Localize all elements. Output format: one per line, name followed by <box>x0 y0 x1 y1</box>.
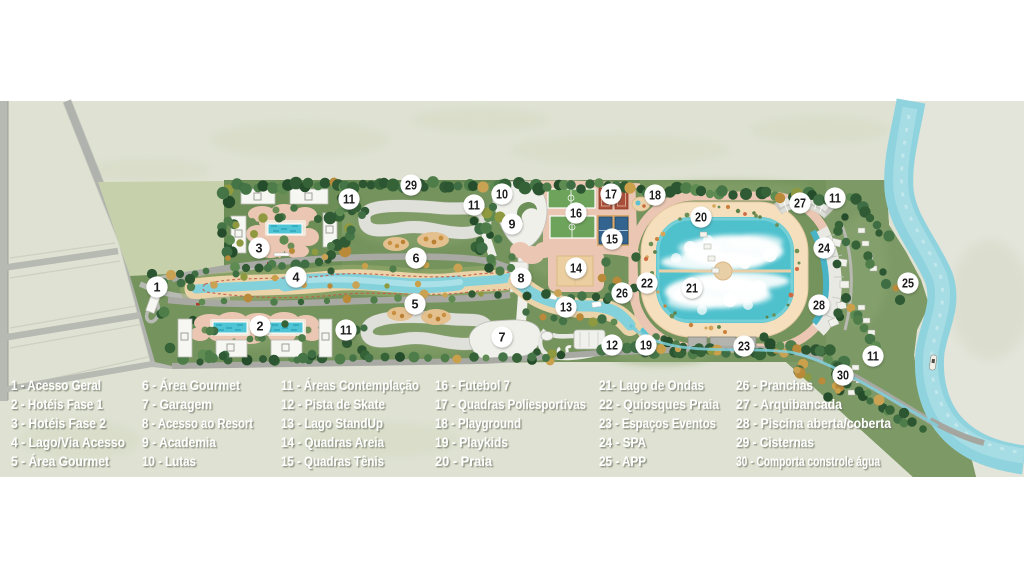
svg-text:10 - Lutas: 10 - Lutas <box>142 453 196 469</box>
svg-text:3 - Hotéis Fase 2: 3 - Hotéis Fase 2 <box>11 415 106 431</box>
svg-text:4: 4 <box>293 270 300 284</box>
svg-text:30: 30 <box>837 368 849 382</box>
svg-text:13 - Lago StandUp: 13 - Lago StandUp <box>281 415 383 431</box>
svg-text:14 - Quadras Areia: 14 - Quadras Areia <box>281 434 384 450</box>
svg-text:1 - Acesso Geral: 1 - Acesso Geral <box>11 377 101 393</box>
svg-text:1: 1 <box>154 280 161 294</box>
svg-text:15 - Quadras Tênis: 15 - Quadras Tênis <box>281 453 384 469</box>
svg-text:26: 26 <box>616 286 628 300</box>
svg-text:12 - Pista de Skate: 12 - Pista de Skate <box>281 396 385 412</box>
svg-text:23: 23 <box>738 339 750 353</box>
svg-text:27: 27 <box>794 196 806 210</box>
svg-text:18: 18 <box>649 188 661 202</box>
svg-text:22: 22 <box>641 276 653 290</box>
svg-text:16 - Futebol 7: 16 - Futebol 7 <box>435 377 510 393</box>
svg-text:3: 3 <box>256 241 263 255</box>
svg-text:19 - Playkids: 19 - Playkids <box>435 434 508 450</box>
svg-text:21: 21 <box>686 281 698 295</box>
svg-text:11: 11 <box>829 191 841 205</box>
svg-text:20 - Praia: 20 - Praia <box>435 453 492 469</box>
svg-text:10: 10 <box>496 187 508 201</box>
svg-text:7: 7 <box>499 330 506 344</box>
svg-text:28: 28 <box>813 298 825 312</box>
svg-text:24 - SPA: 24 - SPA <box>599 434 646 450</box>
svg-text:20: 20 <box>695 210 707 224</box>
svg-text:29 - Cisternas: 29 - Cisternas <box>736 434 814 450</box>
svg-text:11: 11 <box>468 198 480 212</box>
svg-text:30 - Comporta constrole água: 30 - Comporta constrole água <box>736 453 880 469</box>
svg-text:2: 2 <box>257 319 264 333</box>
svg-text:23 - Espaços Eventos: 23 - Espaços Eventos <box>599 415 716 431</box>
svg-text:2 - Hotéis Fase 1: 2 - Hotéis Fase 1 <box>11 396 103 412</box>
svg-text:5 - Área Gourmet: 5 - Área Gourmet <box>11 453 109 469</box>
svg-text:13: 13 <box>560 300 572 314</box>
svg-text:17 - Quadras Poliesportivas: 17 - Quadras Poliesportivas <box>435 396 586 412</box>
svg-text:28 - Piscina aberta/coberta: 28 - Piscina aberta/coberta <box>736 415 891 431</box>
svg-text:24: 24 <box>818 241 830 255</box>
svg-text:11: 11 <box>340 323 352 337</box>
svg-text:5: 5 <box>412 297 419 311</box>
svg-text:6: 6 <box>413 251 420 265</box>
svg-text:16: 16 <box>570 206 582 220</box>
svg-text:11 - Áreas Contemplação: 11 - Áreas Contemplação <box>281 377 419 393</box>
svg-text:19: 19 <box>640 338 652 352</box>
svg-text:4 - Lago/Via Acesso: 4 - Lago/Via Acesso <box>11 434 125 450</box>
svg-text:21- Lago de Ondas: 21- Lago de Ondas <box>599 377 704 393</box>
svg-text:9: 9 <box>509 217 516 231</box>
svg-text:25: 25 <box>902 276 914 290</box>
svg-text:29: 29 <box>405 178 417 192</box>
svg-text:25 - APP: 25 - APP <box>599 453 646 469</box>
svg-text:7 - Garagem: 7 - Garagem <box>142 396 212 412</box>
svg-text:8 - Acesso ao Resort: 8 - Acesso ao Resort <box>142 415 253 431</box>
svg-text:17: 17 <box>605 187 617 201</box>
svg-text:11: 11 <box>343 192 355 206</box>
svg-text:22 - Quiosques Praia: 22 - Quiosques Praia <box>599 396 719 412</box>
svg-text:8: 8 <box>518 271 525 285</box>
svg-text:11: 11 <box>867 349 879 363</box>
svg-text:15: 15 <box>606 232 618 246</box>
svg-text:27 - Arquibancada: 27 - Arquibancada <box>736 396 842 412</box>
svg-text:6 - Área Gourmet: 6 - Área Gourmet <box>142 377 240 393</box>
svg-text:12: 12 <box>606 338 618 352</box>
svg-text:18 - Playground: 18 - Playground <box>435 415 521 431</box>
svg-text:9 - Academia: 9 - Academia <box>142 434 216 450</box>
svg-text:26 - Pranchas: 26 - Pranchas <box>736 377 813 393</box>
svg-text:14: 14 <box>570 261 582 275</box>
